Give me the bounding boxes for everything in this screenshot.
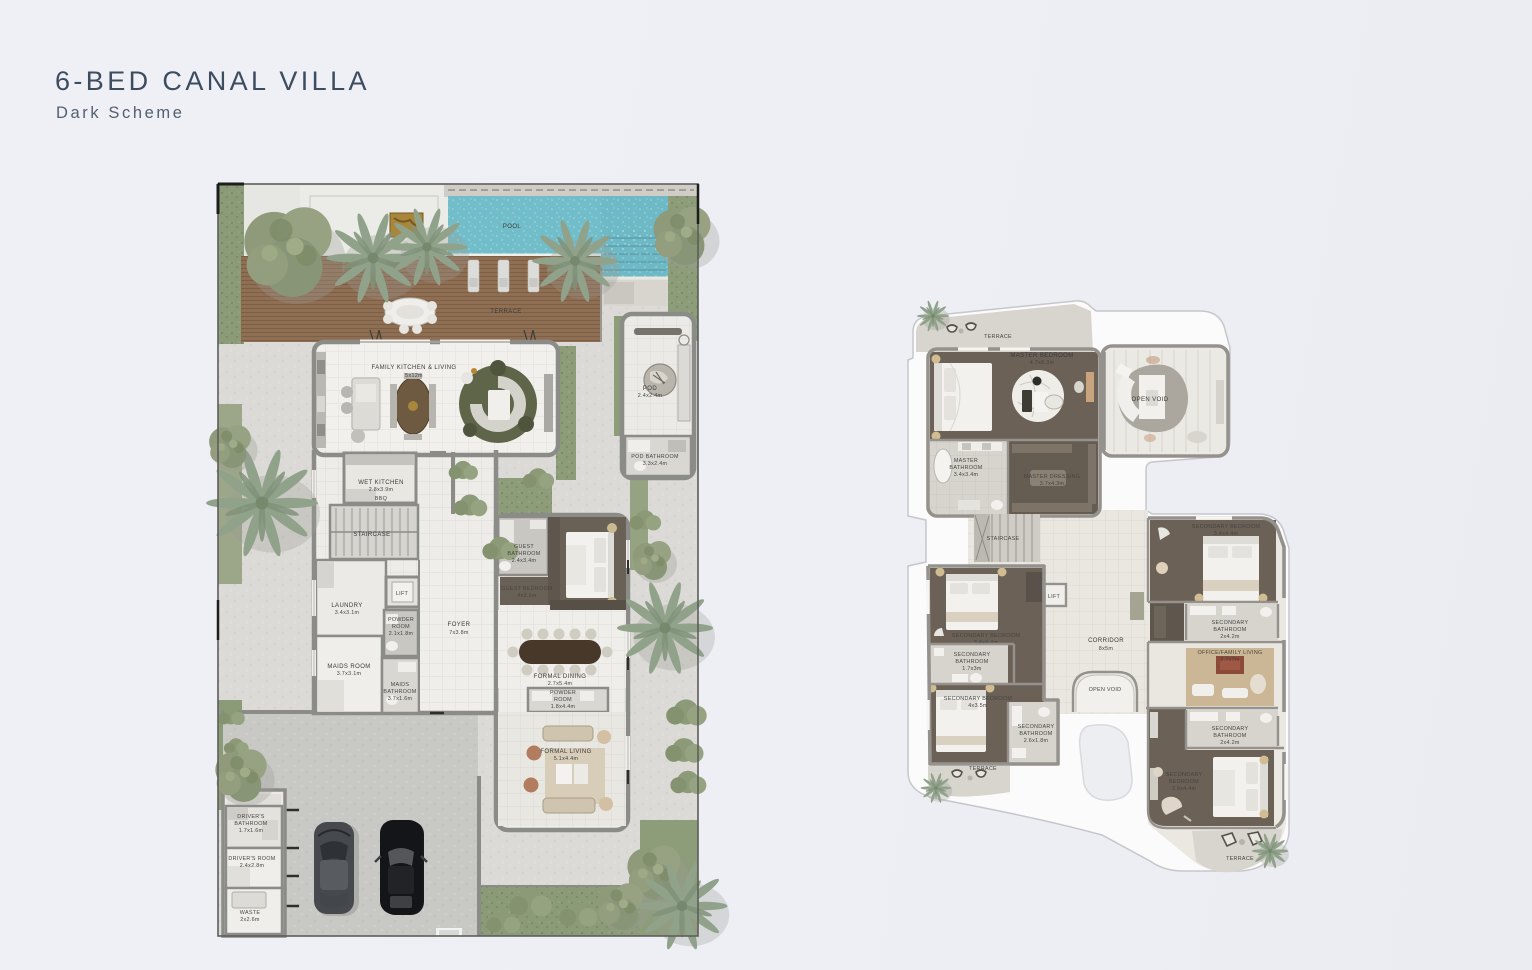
svg-text:ROOM: ROOM [554, 697, 572, 703]
svg-text:SECONDARY: SECONDARY [1212, 620, 1249, 626]
svg-text:MAIDS ROOM: MAIDS ROOM [327, 664, 370, 670]
svg-text:SECONDARY: SECONDARY [1018, 724, 1055, 730]
svg-text:MASTER: MASTER [954, 458, 978, 464]
svg-text:LIFT: LIFT [1048, 594, 1061, 600]
svg-text:BATHROOM: BATHROOM [1213, 627, 1246, 633]
svg-text:3.9x4.4m: 3.9x4.4m [1172, 786, 1197, 792]
svg-text:SECONDARY BEDROOM: SECONDARY BEDROOM [1192, 524, 1261, 530]
svg-text:2.1x1.8m: 2.1x1.8m [389, 631, 414, 637]
svg-text:5x12m: 5x12m [405, 373, 423, 379]
svg-text:SECONDARY BEDROOM: SECONDARY BEDROOM [952, 633, 1021, 639]
svg-text:WET KITCHEN: WET KITCHEN [358, 480, 404, 486]
svg-text:STAIRCASE: STAIRCASE [987, 536, 1020, 542]
svg-text:BATHROOM: BATHROOM [949, 465, 982, 471]
svg-text:POWDER: POWDER [550, 690, 576, 696]
svg-text:7x3.8m: 7x3.8m [449, 630, 469, 636]
svg-text:DRIVER'S: DRIVER'S [237, 814, 264, 820]
svg-text:4.7x8.3m: 4.7x8.3m [1030, 360, 1055, 366]
svg-text:BATHROOM: BATHROOM [234, 821, 267, 827]
svg-text:4x3.5m: 4x3.5m [968, 703, 988, 709]
svg-text:CORRIDOR: CORRIDOR [1088, 638, 1124, 644]
svg-text:3.3x2.4m: 3.3x2.4m [643, 461, 668, 467]
svg-text:SECONDARY: SECONDARY [954, 652, 991, 658]
svg-text:OPEN VOID: OPEN VOID [1132, 397, 1169, 403]
svg-text:BBQ: BBQ [375, 496, 387, 502]
svg-text:SECONDARY: SECONDARY [1212, 726, 1249, 732]
svg-text:BATHROOM: BATHROOM [1019, 731, 1052, 737]
svg-text:DRIVER'S ROOM: DRIVER'S ROOM [228, 856, 275, 862]
svg-text:FORMAL LIVING: FORMAL LIVING [540, 749, 591, 755]
svg-text:ROOM: ROOM [392, 624, 410, 630]
svg-text:3.4x3.1m: 3.4x3.1m [335, 610, 360, 616]
svg-text:POD: POD [643, 386, 657, 392]
svg-text:BATHROOM: BATHROOM [955, 659, 988, 665]
svg-text:3.4x4.4m: 3.4x4.4m [1214, 531, 1239, 537]
svg-text:GUEST BEDROOM: GUEST BEDROOM [501, 586, 553, 592]
svg-text:TERRACE: TERRACE [984, 334, 1012, 340]
svg-text:TERRACE: TERRACE [1226, 856, 1254, 862]
svg-text:2.7x7m: 2.7x7m [1220, 657, 1240, 663]
svg-text:BEDROOM: BEDROOM [1169, 779, 1199, 785]
svg-text:POD BATHROOM: POD BATHROOM [631, 454, 679, 460]
svg-text:LIFT: LIFT [396, 591, 409, 597]
svg-text:FAMILY KITCHEN & LIVING: FAMILY KITCHEN & LIVING [372, 365, 457, 371]
svg-text:LAUNDRY: LAUNDRY [331, 603, 362, 609]
svg-text:BATHROOM: BATHROOM [1213, 733, 1246, 739]
svg-text:OFFICE/FAMILY LIVING: OFFICE/FAMILY LIVING [1197, 650, 1262, 656]
svg-text:2.6x1.8m: 2.6x1.8m [1024, 738, 1049, 744]
svg-text:FOYER: FOYER [448, 622, 471, 628]
svg-text:BATHROOM: BATHROOM [383, 689, 416, 695]
svg-text:MASTER BEDROOM: MASTER BEDROOM [1010, 353, 1073, 359]
svg-text:3.7x1.6m: 3.7x1.6m [388, 696, 413, 702]
svg-text:2.4x2.4m: 2.4x2.4m [638, 393, 663, 399]
svg-text:FORMAL DINING: FORMAL DINING [534, 674, 587, 680]
svg-text:3.4x3.4m: 3.4x3.4m [954, 472, 979, 478]
svg-text:TERRACE: TERRACE [969, 766, 997, 772]
svg-text:1.7x3m: 1.7x3m [962, 666, 982, 672]
svg-text:2x4.2m: 2x4.2m [1220, 740, 1240, 746]
svg-text:STAIRCASE: STAIRCASE [353, 532, 390, 538]
svg-text:MAIDS: MAIDS [391, 682, 410, 688]
svg-text:POOL: POOL [503, 224, 522, 230]
svg-text:4x3.6m: 4x3.6m [517, 593, 537, 599]
svg-text:SECONDARY BEDROOM: SECONDARY BEDROOM [944, 696, 1013, 702]
svg-text:3.7x4.3m: 3.7x4.3m [1040, 481, 1065, 487]
svg-text:5.1x4.4m: 5.1x4.4m [554, 756, 579, 762]
svg-text:SECONDARY: SECONDARY [1166, 772, 1203, 778]
svg-text:GUEST: GUEST [514, 544, 534, 550]
svg-text:2.8x3.9m: 2.8x3.9m [369, 487, 394, 493]
svg-text:2x4.2m: 2x4.2m [1220, 634, 1240, 640]
svg-text:TERRACE: TERRACE [490, 309, 521, 315]
svg-text:2.4x2.8m: 2.4x2.8m [240, 863, 265, 869]
svg-text:1.7x1.6m: 1.7x1.6m [239, 828, 264, 834]
svg-text:WASTE: WASTE [240, 910, 261, 916]
svg-text:BATHROOM: BATHROOM [507, 551, 540, 557]
svg-text:OPEN VOID: OPEN VOID [1089, 687, 1122, 693]
svg-text:1.8x4.4m: 1.8x4.4m [551, 704, 576, 710]
svg-text:2.7x5.4m: 2.7x5.4m [548, 681, 573, 687]
svg-text:POWDER: POWDER [388, 617, 414, 623]
svg-text:2x2.6m: 2x2.6m [240, 917, 260, 923]
svg-text:2.4x3.4m: 2.4x3.4m [512, 558, 537, 564]
svg-text:3.7x3.1m: 3.7x3.1m [337, 671, 362, 677]
svg-text:MASTER DRESSING: MASTER DRESSING [1024, 474, 1081, 480]
svg-text:8x5m: 8x5m [1099, 646, 1114, 652]
